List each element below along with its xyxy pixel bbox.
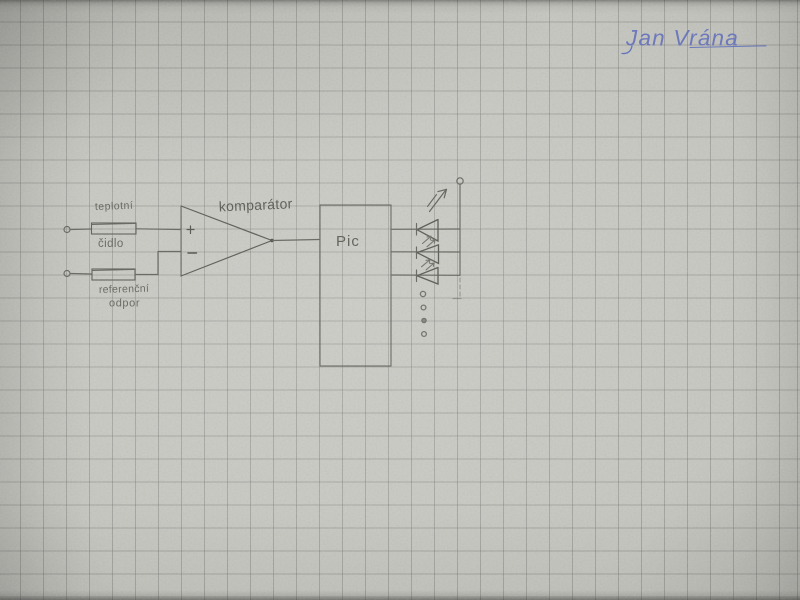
svg-text:komparátor: komparátor xyxy=(218,195,292,214)
svg-text:teplotní: teplotní xyxy=(95,200,134,213)
svg-text:čidlo: čidlo xyxy=(98,238,124,250)
svg-text:odpor: odpor xyxy=(109,298,140,310)
svg-text:Pic: Pic xyxy=(336,233,360,250)
svg-text:referenční: referenční xyxy=(99,283,150,296)
